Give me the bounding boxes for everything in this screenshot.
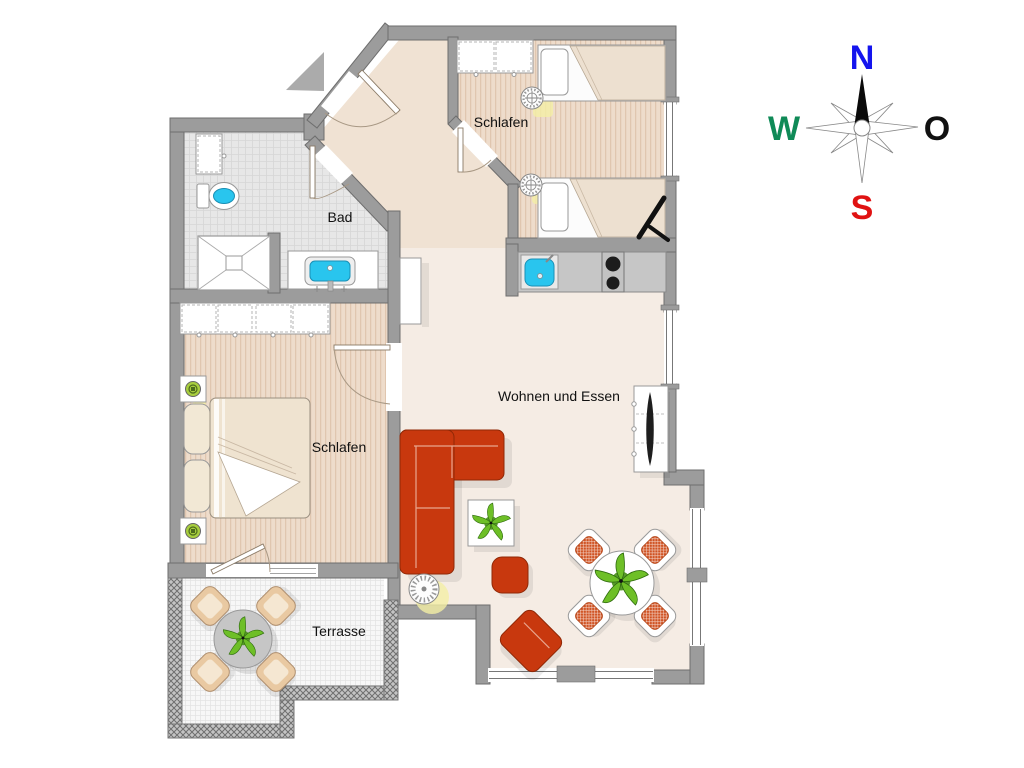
- nightstand: [180, 518, 206, 544]
- bath-cabinet: [196, 134, 226, 174]
- pillow: [184, 460, 210, 512]
- wardrobe-knob: [271, 333, 275, 337]
- wall-north: [388, 26, 676, 40]
- compass-letter-s: S: [851, 189, 874, 227]
- room-label-living: Wohnen und Essen: [498, 388, 620, 404]
- faucet: [328, 281, 333, 291]
- wall-bath-bedroom-divider: [170, 289, 398, 303]
- wardrobe-knob: [474, 73, 478, 77]
- terrace-wall-west: [168, 578, 182, 738]
- wardrobe: [457, 40, 533, 77]
- wall-bay-corner-north: [690, 484, 704, 510]
- floor-lamp-icon: [409, 574, 439, 604]
- tv-sideboard: [632, 386, 670, 478]
- floor-plan: Schlafen Bad Schlafen Wohnen und Essen T…: [0, 0, 1024, 768]
- wall-bath-top: [170, 118, 322, 132]
- kitchen-sink: [521, 255, 558, 289]
- bed: [538, 45, 666, 101]
- pillow: [541, 49, 568, 95]
- bedroom-left-door-leaf: [334, 345, 390, 350]
- wall-corner-column: [476, 605, 490, 684]
- kitchen: [518, 252, 666, 292]
- room-label-bedroom-top: Schlafen: [474, 114, 528, 130]
- floor-plan-page: Schlafen Bad Schlafen Wohnen und Essen T…: [0, 0, 1024, 768]
- pillow: [184, 404, 210, 454]
- compass-letter-w: W: [768, 110, 801, 148]
- wardrobe-knob: [197, 333, 201, 337]
- sideboard-knob: [632, 452, 636, 456]
- wall-bay-corner-south: [690, 644, 704, 684]
- room-label-bedroom-left: Schlafen: [312, 439, 366, 455]
- bedroom-top-door-leaf: [458, 128, 463, 172]
- terrace-wall-east: [384, 600, 398, 700]
- coffee-table: [468, 500, 520, 552]
- compass-letter-o: O: [924, 110, 950, 148]
- room-label-terrace: Terrasse: [312, 623, 366, 639]
- burner: [607, 277, 620, 290]
- compass-spike-east: [864, 121, 918, 135]
- shower: [198, 236, 270, 290]
- vanity-sink: [288, 251, 378, 292]
- window-bay-east: [687, 508, 707, 646]
- sideboard-knob: [632, 427, 636, 431]
- room-label-bathroom: Bad: [328, 209, 353, 225]
- compass-spike-south: [855, 129, 869, 183]
- compass-hub: [854, 120, 870, 136]
- wardrobe: [180, 303, 330, 337]
- pouf: [492, 557, 533, 598]
- double-bed: [210, 398, 310, 518]
- wall-bedroom-top-south: [506, 238, 676, 252]
- window-living-south: [488, 666, 654, 682]
- nightstand: [180, 376, 206, 402]
- burner: [606, 257, 621, 272]
- toilet: [197, 183, 239, 210]
- wall-living-west: [388, 211, 400, 619]
- wardrobe-knob: [309, 333, 313, 337]
- cabinet-knob: [222, 154, 226, 158]
- wall-kitchen-stub: [506, 244, 518, 296]
- wall-bedroom-top-stub: [508, 184, 518, 240]
- compass-spike-west: [806, 121, 860, 135]
- wall-south-east: [652, 670, 694, 684]
- wardrobe-knob: [233, 333, 237, 337]
- terrace-wall-step-h: [280, 686, 398, 700]
- wall-west: [170, 118, 184, 578]
- stove: [602, 252, 624, 292]
- terrace-wall-south: [168, 724, 294, 738]
- compass-letter-n: N: [850, 39, 875, 77]
- sideboard-knob: [632, 402, 636, 406]
- hall-cabinet: [400, 258, 429, 327]
- compass-rose: N W O S: [768, 39, 950, 227]
- pillow: [541, 183, 568, 231]
- shower-drain: [226, 256, 242, 270]
- bedroom-left-door-opening: [386, 343, 402, 411]
- wardrobe-knob: [512, 73, 516, 77]
- entry-arrow-icon: [286, 52, 324, 91]
- bath-door-leaf: [310, 146, 315, 198]
